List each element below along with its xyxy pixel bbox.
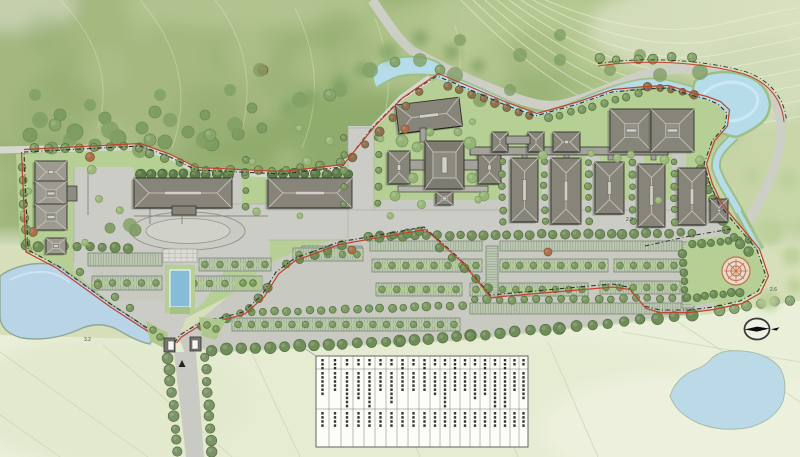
svg-text:2.6: 2.6 xyxy=(770,287,777,293)
svg-text:3.2: 3.2 xyxy=(84,337,91,343)
svg-text:2.8: 2.8 xyxy=(626,217,633,223)
